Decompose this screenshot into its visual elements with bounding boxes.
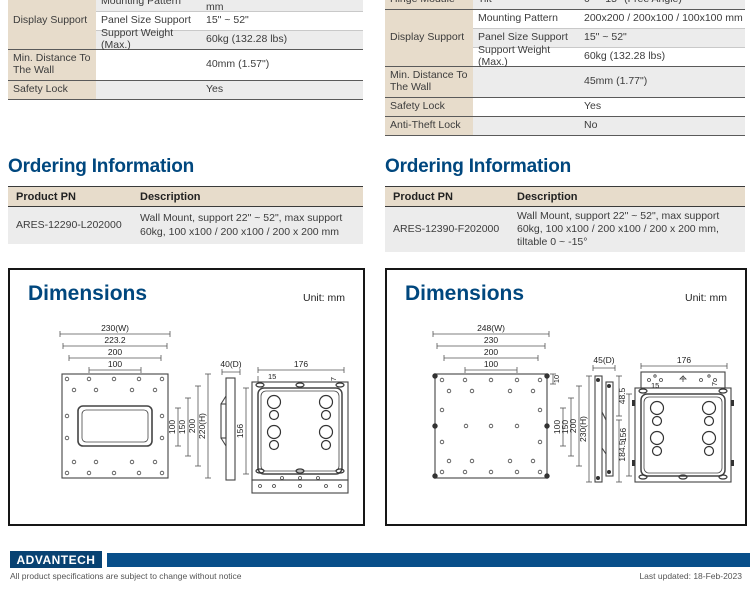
dim-label: 150	[177, 420, 187, 434]
spec-group-cell: Min. Distance To The Wall	[8, 50, 96, 81]
dim-label: 200	[484, 347, 498, 357]
ordering-col-desc: Description	[132, 186, 363, 207]
spec-label-cell: Support Weight (Max.)	[473, 48, 576, 67]
ordering-title-right: Ordering Information	[385, 156, 571, 178]
spec-group-cell: Hinge Module	[385, 0, 473, 10]
front-view	[435, 374, 547, 478]
dim-label: 220(H)	[197, 413, 207, 439]
advantech-logo: ADVANTECH	[10, 551, 102, 568]
spec-value-cell: 60kg (132.28 lbs)	[576, 48, 745, 67]
dim-label: 100	[108, 359, 122, 369]
dim-label: 15	[651, 381, 659, 390]
dim-label: 184.5	[617, 440, 627, 462]
front-view-holes	[65, 377, 164, 475]
ordering-table-left: Product PN Description ARES-12290-L20200…	[8, 186, 363, 244]
spec-value-cell: No	[576, 117, 745, 136]
ordering-col-pn: Product PN	[385, 186, 509, 207]
rear-view-holes	[259, 477, 342, 488]
footer-bar	[107, 553, 750, 567]
spec-group-cell: Anti-Theft Lock	[385, 117, 473, 136]
spec-group-cell: Display Support	[8, 0, 96, 50]
spec-value-cell: 45mm (1.77")	[576, 67, 745, 98]
dim-label: 176	[677, 355, 691, 365]
ordering-desc: Wall Mount, support 22" ~ 52", max suppo…	[509, 207, 745, 252]
ordering-table-right: Product PN Description ARES-12390-F20200…	[385, 186, 745, 252]
dimensions-title: Dimensions	[405, 282, 524, 306]
spec-group-cell: Display Support	[385, 10, 473, 67]
dim-label: 200	[108, 347, 122, 357]
spec-label-cell	[96, 50, 198, 81]
dim-label: 7	[329, 377, 338, 381]
footer-last-updated: Last updated: 18-Feb-2023	[639, 571, 742, 581]
spec-value-cell: 15" ~ 52"	[576, 29, 745, 48]
dim-label: 48.5	[617, 387, 627, 404]
spec-table-left: Display Support Mounting Pattern 200x200…	[8, 0, 363, 100]
spec-value-cell: 15" ~ 52"	[198, 12, 363, 31]
spec-group-label: Display Support	[13, 15, 87, 27]
technical-drawing-right: 248(W) 230 200 100 10 100 150 200 230(H)	[389, 320, 741, 520]
side-view	[221, 378, 235, 480]
spec-table-right: Hinge Module Tilt 0 ~ -15° (Free Angle) …	[385, 0, 745, 136]
dim-label: 100	[484, 359, 498, 369]
rear-view-slots	[639, 389, 727, 479]
spec-value-cell: 200x200 / 200x100 / 100x100 mm	[198, 0, 363, 12]
ordering-pn: ARES-12390-F202000	[385, 207, 509, 252]
spec-label-cell	[96, 81, 198, 100]
dimensions-unit: Unit: mm	[303, 292, 345, 304]
side-depth-dim	[222, 369, 240, 375]
spec-group-label: Display Support	[390, 32, 464, 44]
dim-label: 156	[618, 428, 628, 442]
side-view	[595, 376, 613, 482]
dim-label: 230(H)	[578, 416, 588, 442]
dim-label: 200	[187, 419, 197, 433]
dim-label: 45(D)	[593, 355, 614, 365]
dim-label: 40(D)	[220, 359, 241, 369]
spec-group-cell: Safety Lock	[8, 81, 96, 100]
dim-label: 230(W)	[101, 323, 129, 333]
dim-label: 223.2	[104, 335, 126, 345]
spec-label-cell	[473, 117, 576, 136]
rear-view-slots	[256, 383, 344, 473]
spec-label-cell: Tilt	[473, 0, 576, 10]
dim-label: 100	[167, 420, 177, 434]
footer: ADVANTECH	[10, 551, 750, 569]
ordering-pn: ARES-12290-L202000	[8, 207, 132, 244]
dim-label: 248(W)	[477, 323, 505, 333]
dim-label: 156	[235, 424, 245, 438]
spec-value-cell: Yes	[198, 81, 363, 100]
spec-value-cell: Yes	[576, 98, 745, 117]
dimensions-unit: Unit: mm	[685, 292, 727, 304]
spec-value-cell: 40mm (1.57")	[198, 50, 363, 81]
side-view-hinges	[596, 378, 611, 480]
rear-view-tabs	[632, 400, 734, 466]
dimensions-panel-right: Dimensions Unit: mm 248(W) 230 200 1	[385, 268, 747, 526]
spec-group-cell: Safety Lock	[385, 98, 473, 117]
spec-group-cell: Min. Distance To The Wall	[385, 67, 473, 98]
front-view	[62, 374, 168, 478]
dim-label: 200	[568, 419, 578, 433]
dim-label: 176	[294, 359, 308, 369]
spec-value-cell: 0 ~ -15° (Free Angle)	[576, 0, 745, 10]
dim-label: 230	[484, 335, 498, 345]
spec-value-cell: 60kg (132.28 lbs)	[198, 31, 363, 50]
footer-disclaimer: All product specifications are subject t…	[10, 571, 242, 581]
dimensions-panel-left: Dimensions Unit: mm 230(W) 223.2 200 100	[8, 268, 365, 526]
dim-label: 10	[552, 375, 561, 383]
technical-drawing-left: 230(W) 223.2 200 100 100 150 200 220(H) …	[12, 320, 361, 520]
ordering-desc: Wall Mount, support 22" ~ 52", max suppo…	[132, 207, 363, 244]
front-view-holes	[440, 378, 542, 474]
dim-label: 7	[710, 382, 719, 386]
ordering-col-desc: Description	[509, 186, 745, 207]
spec-label-cell: Support Weight (Max.)	[96, 31, 198, 50]
spec-label-cell	[473, 67, 576, 98]
spec-label-cell: Mounting Pattern	[473, 10, 576, 29]
spec-label-cell	[473, 98, 576, 117]
spec-value-cell: 200x200 / 200x100 / 100x100 mm	[576, 10, 745, 29]
ordering-title-left: Ordering Information	[8, 156, 194, 178]
rear-view	[635, 372, 731, 482]
dim-label: 15	[268, 372, 276, 381]
spec-label-cell: Mounting Pattern	[96, 0, 198, 12]
dimensions-title: Dimensions	[28, 282, 147, 306]
ordering-col-pn: Product PN	[8, 186, 132, 207]
